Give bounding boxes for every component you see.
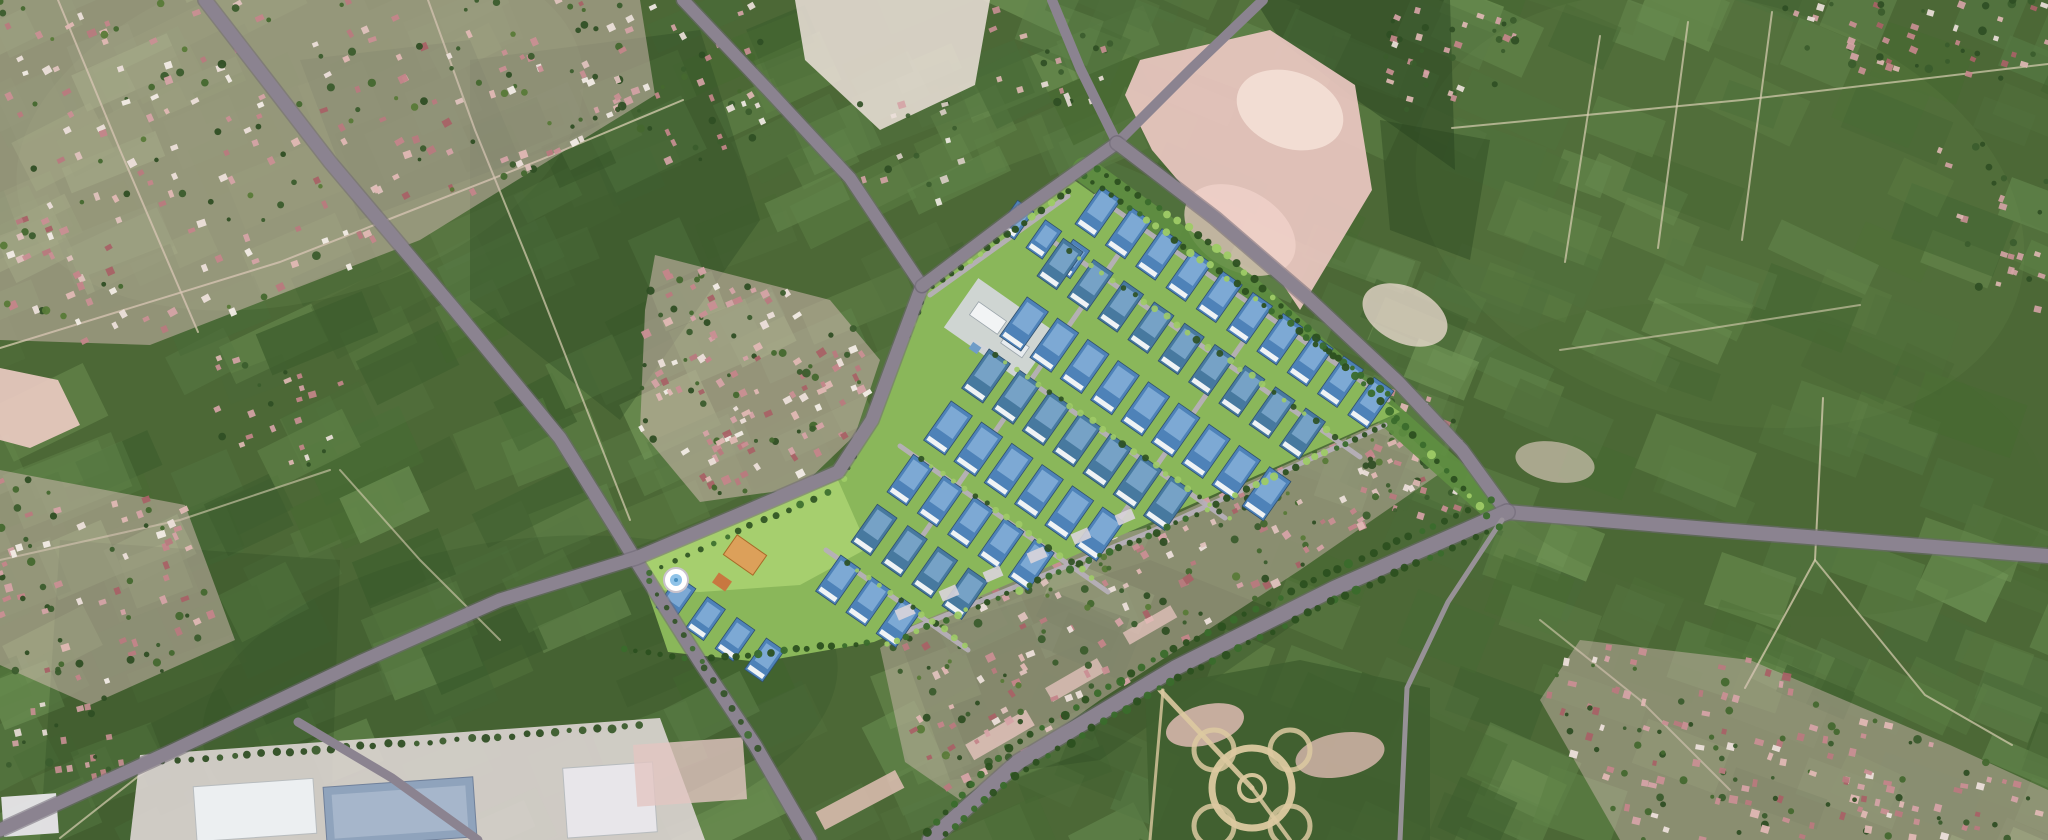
tree-icon	[1465, 507, 1471, 513]
tree-icon	[1312, 521, 1316, 525]
tree-icon	[1361, 381, 1366, 386]
tree-icon	[398, 740, 406, 748]
tree-icon	[1321, 449, 1328, 456]
tree-icon	[1234, 644, 1242, 652]
formal-garden	[1145, 660, 1430, 840]
tree-icon	[1376, 459, 1383, 466]
tree-icon	[1304, 608, 1312, 616]
tree-icon	[933, 819, 940, 826]
tree-icon	[957, 755, 962, 760]
tree-icon	[4, 300, 11, 307]
tree-icon	[731, 333, 736, 338]
tree-icon	[672, 619, 677, 624]
tree-icon	[1782, 5, 1788, 11]
tree-icon	[118, 284, 123, 289]
tree-icon	[1027, 731, 1034, 738]
tree-icon	[273, 748, 281, 756]
tree-icon	[420, 145, 426, 151]
tree-icon	[1391, 19, 1395, 23]
tree-icon	[984, 599, 990, 605]
tree-icon	[593, 26, 598, 31]
tree-icon	[1961, 49, 1965, 53]
tree-icon	[1185, 223, 1193, 231]
tree-icon	[1963, 770, 1969, 776]
tree-icon	[1094, 689, 1102, 697]
tree-icon	[1567, 728, 1574, 735]
tree-icon	[1370, 438, 1374, 442]
existing-factory-shape	[193, 778, 317, 840]
tree-icon	[850, 325, 857, 332]
village-building	[1864, 825, 1872, 834]
tree-icon	[727, 373, 731, 377]
tree-icon	[1913, 735, 1922, 744]
tree-icon	[745, 653, 751, 659]
tree-icon	[506, 72, 512, 78]
tree-icon	[1272, 390, 1277, 395]
tree-icon	[1066, 565, 1074, 573]
village-building	[66, 765, 73, 772]
tree-icon	[1085, 557, 1092, 564]
tree-icon	[1077, 410, 1084, 417]
tree-icon	[1386, 483, 1390, 487]
tree-icon	[646, 578, 652, 584]
tree-icon	[1451, 419, 1456, 424]
tree-icon	[55, 667, 60, 672]
tree-icon	[266, 18, 271, 23]
tree-icon	[1253, 481, 1260, 488]
tree-icon	[1198, 664, 1204, 670]
tree-icon	[1144, 692, 1152, 700]
village-building	[1605, 644, 1612, 651]
tree-icon	[2001, 175, 2007, 181]
tree-icon	[194, 634, 201, 641]
tree-icon	[1110, 278, 1116, 284]
tree-icon	[1314, 605, 1320, 611]
tree-icon	[1152, 222, 1159, 229]
tree-icon	[996, 596, 1001, 601]
tree-icon	[2026, 796, 2030, 800]
tree-icon	[844, 352, 850, 358]
tree-icon	[1591, 663, 1595, 667]
tree-icon	[1156, 205, 1162, 211]
tree-icon	[617, 3, 623, 9]
tree-icon	[1587, 705, 1592, 710]
tree-icon	[681, 74, 688, 81]
tree-icon	[1451, 476, 1458, 483]
tree-icon	[681, 632, 687, 638]
tree-icon	[1303, 457, 1311, 465]
tree-icon	[1733, 777, 1738, 782]
tree-icon	[1140, 299, 1147, 306]
tree-icon	[1056, 569, 1062, 575]
tree-icon	[394, 96, 398, 100]
tree-icon	[1925, 64, 1934, 73]
tree-icon	[494, 734, 501, 741]
tree-icon	[985, 500, 990, 505]
tree-icon	[903, 634, 909, 640]
tree-icon	[637, 124, 645, 132]
tree-icon	[1975, 283, 1983, 291]
tree-icon	[1160, 538, 1168, 546]
tree-icon	[579, 726, 587, 734]
tree-icon	[943, 617, 950, 624]
tree-icon	[1656, 794, 1664, 802]
tree-icon	[1363, 462, 1370, 469]
tree-icon	[1828, 722, 1836, 730]
tree-icon	[951, 801, 958, 808]
tree-icon	[1645, 808, 1652, 815]
tree-icon	[985, 763, 993, 771]
tree-icon	[1015, 682, 1021, 688]
tree-icon	[812, 374, 819, 381]
tree-icon	[1065, 188, 1071, 194]
tree-icon	[926, 182, 932, 188]
tree-icon	[1163, 523, 1170, 530]
tree-icon	[710, 677, 717, 684]
tree-icon	[268, 401, 274, 407]
tree-icon	[1873, 719, 1878, 724]
tree-icon	[1080, 33, 1086, 39]
tree-icon	[1023, 767, 1029, 773]
tree-icon	[1015, 521, 1022, 528]
tree-icon	[1033, 759, 1040, 766]
tree-icon	[456, 46, 460, 50]
tree-icon	[12, 667, 20, 675]
tree-icon	[1300, 562, 1304, 566]
tree-icon	[1938, 820, 1942, 824]
tree-icon	[720, 690, 727, 697]
tree-icon	[1044, 544, 1052, 552]
tree-icon	[214, 128, 221, 135]
village-building	[12, 740, 19, 747]
tree-icon	[31, 165, 37, 171]
tree-icon	[669, 653, 675, 659]
tree-icon	[842, 643, 847, 648]
tree-icon	[1256, 634, 1263, 641]
tree-icon	[943, 809, 949, 815]
tree-icon	[1259, 381, 1266, 388]
tree-icon	[780, 647, 787, 654]
tree-icon	[1159, 598, 1167, 606]
tree-icon	[227, 305, 231, 309]
tree-icon	[1813, 701, 1819, 707]
tree-icon	[1241, 269, 1247, 275]
tree-icon	[1974, 51, 1980, 57]
tree-icon	[450, 187, 455, 192]
tree-icon	[729, 705, 736, 712]
tree-icon	[802, 369, 811, 378]
tree-icon	[0, 242, 8, 250]
tree-icon	[1376, 397, 1384, 405]
tree-icon	[1259, 285, 1267, 293]
tree-icon	[700, 400, 707, 407]
tree-icon	[1278, 315, 1283, 320]
tree-icon	[45, 758, 53, 766]
village-building	[1782, 672, 1792, 681]
tree-icon	[769, 437, 774, 442]
tree-icon	[952, 126, 957, 131]
tree-icon	[709, 117, 716, 124]
tree-icon	[1878, 8, 1885, 15]
tree-icon	[1183, 610, 1189, 616]
tree-icon	[1049, 718, 1055, 724]
tree-icon	[744, 283, 751, 290]
tree-icon	[1483, 512, 1490, 519]
tree-icon	[699, 52, 706, 59]
tree-icon	[725, 534, 730, 539]
tree-icon	[1144, 592, 1151, 599]
tree-icon	[1385, 407, 1394, 416]
tree-icon	[1804, 45, 1810, 51]
tree-icon	[1118, 440, 1126, 448]
tree-icon	[1052, 660, 1058, 666]
tree-icon	[973, 493, 979, 499]
tree-icon	[1186, 249, 1194, 257]
tree-icon	[1409, 431, 1417, 439]
tree-icon	[640, 386, 645, 391]
tree-icon	[318, 54, 323, 59]
tree-icon	[735, 528, 742, 535]
tree-icon	[698, 546, 704, 552]
tree-icon	[1171, 237, 1178, 244]
tree-icon	[976, 604, 981, 609]
tree-icon	[93, 755, 97, 759]
tree-icon	[749, 134, 757, 142]
tree-icon	[1185, 330, 1191, 336]
tree-icon	[1003, 514, 1010, 521]
tree-icon	[1153, 462, 1160, 469]
tree-icon	[280, 151, 286, 157]
tree-icon	[1383, 54, 1388, 59]
tree-icon	[689, 311, 694, 316]
tree-icon	[747, 315, 752, 320]
tree-icon	[1311, 453, 1318, 460]
tree-icon	[551, 728, 559, 736]
village-building	[1913, 818, 1920, 825]
tree-icon	[349, 118, 354, 123]
village-building	[1728, 795, 1738, 804]
tree-icon	[1310, 577, 1316, 583]
tree-icon	[1088, 263, 1094, 269]
tree-icon	[1038, 635, 1046, 643]
tree-icon	[1182, 516, 1188, 522]
tree-icon	[1719, 756, 1725, 762]
tree-icon	[1163, 471, 1169, 477]
tree-icon	[32, 101, 37, 106]
tree-icon	[1252, 606, 1259, 613]
tree-icon	[894, 638, 900, 644]
tree-icon	[1270, 630, 1275, 635]
tree-icon	[1160, 650, 1168, 658]
tree-icon	[368, 79, 376, 87]
tree-icon	[22, 740, 26, 744]
tree-icon	[1082, 696, 1090, 704]
tree-icon	[1018, 719, 1023, 724]
tree-icon	[1401, 564, 1409, 572]
tree-icon	[1876, 53, 1884, 61]
tree-icon	[208, 199, 214, 205]
tree-icon	[1166, 678, 1174, 686]
tree-icon	[247, 192, 253, 198]
tree-icon	[1163, 211, 1171, 219]
tree-icon	[1909, 741, 1913, 745]
tree-icon	[470, 139, 475, 144]
tree-icon	[449, 66, 454, 71]
tree-icon	[416, 43, 423, 50]
tree-icon	[464, 8, 468, 12]
tree-icon	[1094, 165, 1101, 172]
tree-icon	[1204, 629, 1211, 636]
tree-icon	[1382, 542, 1390, 550]
tree-icon	[1303, 334, 1310, 341]
tree-icon	[1184, 485, 1191, 492]
tree-icon	[547, 121, 551, 125]
tree-icon	[1194, 231, 1202, 239]
tree-icon	[141, 136, 147, 142]
tree-icon	[528, 53, 535, 60]
tree-icon	[1476, 502, 1485, 511]
tree-icon	[681, 66, 686, 71]
tree-icon	[20, 596, 26, 602]
tree-icon	[175, 612, 183, 620]
tree-icon	[521, 170, 527, 176]
tree-icon	[642, 363, 646, 367]
tree-icon	[1121, 285, 1127, 291]
tree-icon	[981, 796, 989, 804]
tree-icon	[50, 37, 54, 41]
tree-icon	[1119, 588, 1124, 593]
tree-icon	[1151, 305, 1158, 312]
tree-icon	[1278, 303, 1283, 308]
tree-icon	[218, 60, 227, 69]
tree-icon	[1133, 697, 1141, 705]
tree-icon	[1138, 664, 1146, 672]
tree-icon	[1992, 822, 1998, 828]
tree-icon	[923, 623, 930, 630]
tree-icon	[1488, 496, 1495, 503]
tree-icon	[126, 615, 131, 620]
tree-icon	[1295, 318, 1300, 323]
tree-icon	[637, 109, 641, 113]
tree-icon	[1501, 49, 1505, 53]
tree-icon	[1021, 220, 1027, 226]
tree-icon	[1623, 726, 1627, 730]
tree-icon	[1367, 377, 1374, 384]
tree-icon	[23, 537, 28, 542]
tree-icon	[312, 746, 321, 755]
tree-icon	[1153, 529, 1161, 537]
tree-icon	[1449, 54, 1456, 61]
tree-icon	[746, 522, 753, 529]
tree-icon	[647, 126, 652, 131]
tree-icon	[1709, 734, 1714, 739]
tree-icon	[1090, 180, 1095, 185]
tree-icon	[797, 369, 803, 375]
tree-icon	[1404, 107, 1409, 112]
tree-icon	[1162, 627, 1170, 635]
tree-icon	[201, 589, 208, 596]
tree-icon	[1885, 832, 1892, 839]
tree-icon	[1420, 49, 1425, 54]
tree-icon	[1014, 367, 1020, 373]
tree-icon	[1282, 398, 1287, 403]
tree-icon	[995, 755, 1002, 762]
tree-icon	[153, 658, 161, 666]
tree-icon	[1393, 537, 1401, 545]
tree-icon	[767, 649, 775, 657]
tree-icon	[1313, 342, 1319, 348]
tree-icon	[283, 370, 287, 374]
tree-icon	[1278, 595, 1284, 601]
tree-icon	[1232, 572, 1240, 580]
tree-icon	[510, 31, 515, 36]
tree-icon	[844, 560, 850, 566]
tree-icon	[1283, 469, 1289, 475]
tree-icon	[1187, 668, 1194, 675]
tree-icon	[1034, 576, 1041, 583]
tree-icon	[50, 512, 57, 519]
tree-icon	[1991, 181, 1996, 186]
existing-factory-shape	[332, 785, 469, 838]
tree-icon	[1261, 575, 1269, 583]
tree-icon	[570, 124, 574, 128]
tree-icon	[698, 158, 702, 162]
tree-icon	[348, 48, 356, 56]
tree-icon	[941, 625, 948, 632]
tree-icon	[1713, 745, 1718, 750]
tree-icon	[1223, 494, 1230, 501]
tree-icon	[1197, 495, 1202, 500]
tree-icon	[659, 565, 663, 569]
tree-icon	[661, 85, 665, 89]
tree-icon	[339, 3, 343, 7]
tree-icon	[1937, 816, 1941, 820]
tree-icon	[745, 108, 752, 115]
tree-icon	[1998, 76, 2003, 81]
tree-icon	[1333, 565, 1341, 573]
tree-icon	[1039, 725, 1045, 731]
tree-icon	[1319, 342, 1326, 349]
tree-icon	[966, 712, 971, 717]
tree-icon	[1067, 739, 1076, 748]
tree-icon	[1453, 513, 1459, 519]
tree-icon	[685, 553, 690, 558]
tree-icon	[476, 80, 482, 86]
tree-icon	[156, 643, 160, 647]
tree-icon	[969, 781, 975, 787]
tree-icon	[1099, 562, 1103, 566]
tree-icon	[1027, 583, 1033, 589]
tree-icon	[261, 218, 265, 222]
tree-icon	[1000, 782, 1007, 789]
tree-icon	[1342, 441, 1348, 447]
tree-icon	[992, 352, 998, 358]
tree-icon	[1105, 683, 1111, 689]
tree-icon	[1368, 389, 1376, 397]
tree-icon	[1041, 629, 1046, 634]
tree-icon	[1261, 478, 1269, 486]
tree-icon	[1492, 29, 1496, 33]
tree-icon	[808, 364, 812, 368]
tree-icon	[575, 27, 581, 33]
tree-icon	[717, 139, 722, 144]
tree-icon	[356, 742, 364, 750]
tree-icon	[975, 701, 980, 706]
tree-icon	[1381, 423, 1386, 428]
tree-icon	[690, 646, 696, 652]
tree-icon	[1088, 724, 1096, 732]
tree-icon	[567, 4, 573, 10]
